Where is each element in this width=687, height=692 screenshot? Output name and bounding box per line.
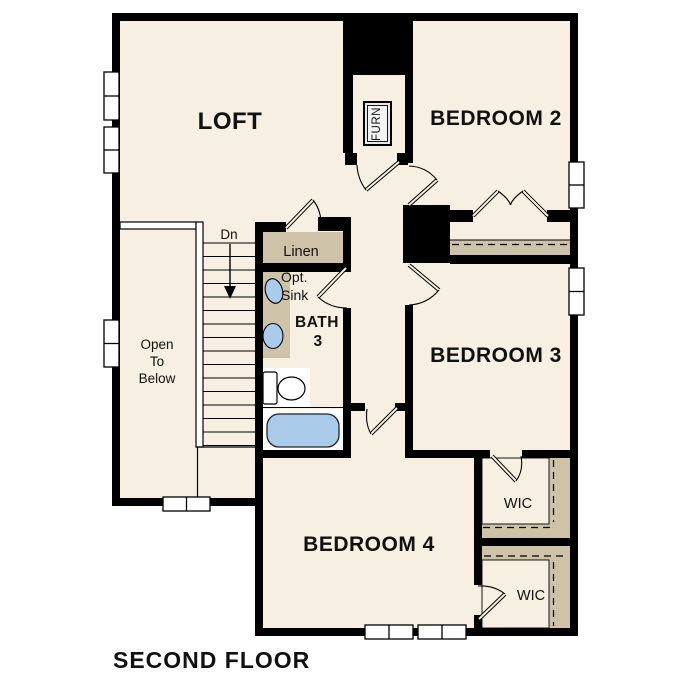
floor-plan-drawing: FURN LOFT BEDROOM 2 BEDROOM 3 BEDROOM 4 … xyxy=(0,0,687,687)
wall-closet-jamb-left xyxy=(450,210,473,222)
wall-closet-jamb-right xyxy=(547,210,578,222)
wall-closet-block xyxy=(403,205,450,263)
wall-bath-bottom xyxy=(255,450,351,458)
floor-plan-page: FURN LOFT BEDROOM 2 BEDROOM 3 BEDROOM 4 … xyxy=(0,0,687,687)
closet-shelf xyxy=(450,240,570,255)
wall-bedroom3-bottom-left xyxy=(405,450,490,458)
floor-title: SECOND FLOOR xyxy=(113,647,310,673)
wall-bedroom3-bottom-right xyxy=(522,450,578,458)
wic-upper-label: WIC xyxy=(504,496,532,512)
open-to-below-line2: To xyxy=(150,354,164,369)
wall-wic-left xyxy=(474,458,482,585)
bedroom2-closet xyxy=(450,222,570,255)
railing-right xyxy=(196,222,203,447)
wall-furnace-left xyxy=(343,75,353,153)
sink-icon xyxy=(263,324,283,349)
opt-sink-label-line2: Sink xyxy=(281,287,309,303)
wall-vestibule-stub-left xyxy=(348,403,365,411)
bath3-label-line2: 3 xyxy=(313,333,322,350)
closet-floor xyxy=(450,222,570,240)
wall-furnace-jamb-left xyxy=(345,153,357,165)
bathtub-icon xyxy=(267,414,339,447)
wall-chase xyxy=(343,13,408,75)
toilet-bowl-icon xyxy=(278,377,305,400)
toilet-tank-icon xyxy=(263,372,277,404)
wall-bedroom3-left xyxy=(405,305,413,450)
opt-sink-label-line1: Opt. xyxy=(281,269,307,285)
bedroom2-label: BEDROOM 2 xyxy=(430,107,562,130)
wall-wic-divider xyxy=(474,538,578,546)
wall-linen-top xyxy=(255,222,286,232)
wall-linen-top-stub xyxy=(318,217,351,231)
bedroom4-label: BEDROOM 4 xyxy=(303,533,435,556)
stairs-down-label: Dn xyxy=(220,227,237,242)
linen-label: Linen xyxy=(283,244,318,260)
exterior-notch xyxy=(112,506,257,636)
open-to-below-line3: Below xyxy=(139,371,176,386)
bedroom3-label: BEDROOM 3 xyxy=(430,344,562,367)
furnace-label: FURN xyxy=(371,107,383,141)
wic-lower-label: WIC xyxy=(517,588,545,604)
furnace-unit: FURN xyxy=(364,102,391,145)
loft-label: LOFT xyxy=(198,108,263,135)
wall-bath-right-lower xyxy=(343,308,351,458)
open-to-below-line1: Open xyxy=(140,337,173,352)
wall-closet-bottom xyxy=(450,255,578,264)
wic-upper-floor xyxy=(482,458,549,524)
wall-bedroom2-left xyxy=(405,21,413,163)
wall-bath-right-upper xyxy=(343,231,351,267)
railing-top xyxy=(120,222,196,229)
bath3-label-line1: BATH xyxy=(295,314,339,331)
wall-bath-bedroom4-left xyxy=(255,222,263,636)
